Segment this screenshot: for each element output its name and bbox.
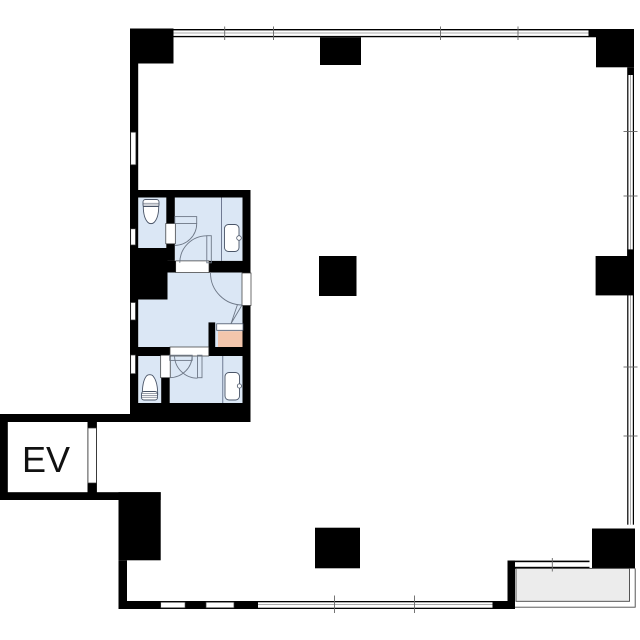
svg-text:EV: EV bbox=[22, 439, 70, 480]
